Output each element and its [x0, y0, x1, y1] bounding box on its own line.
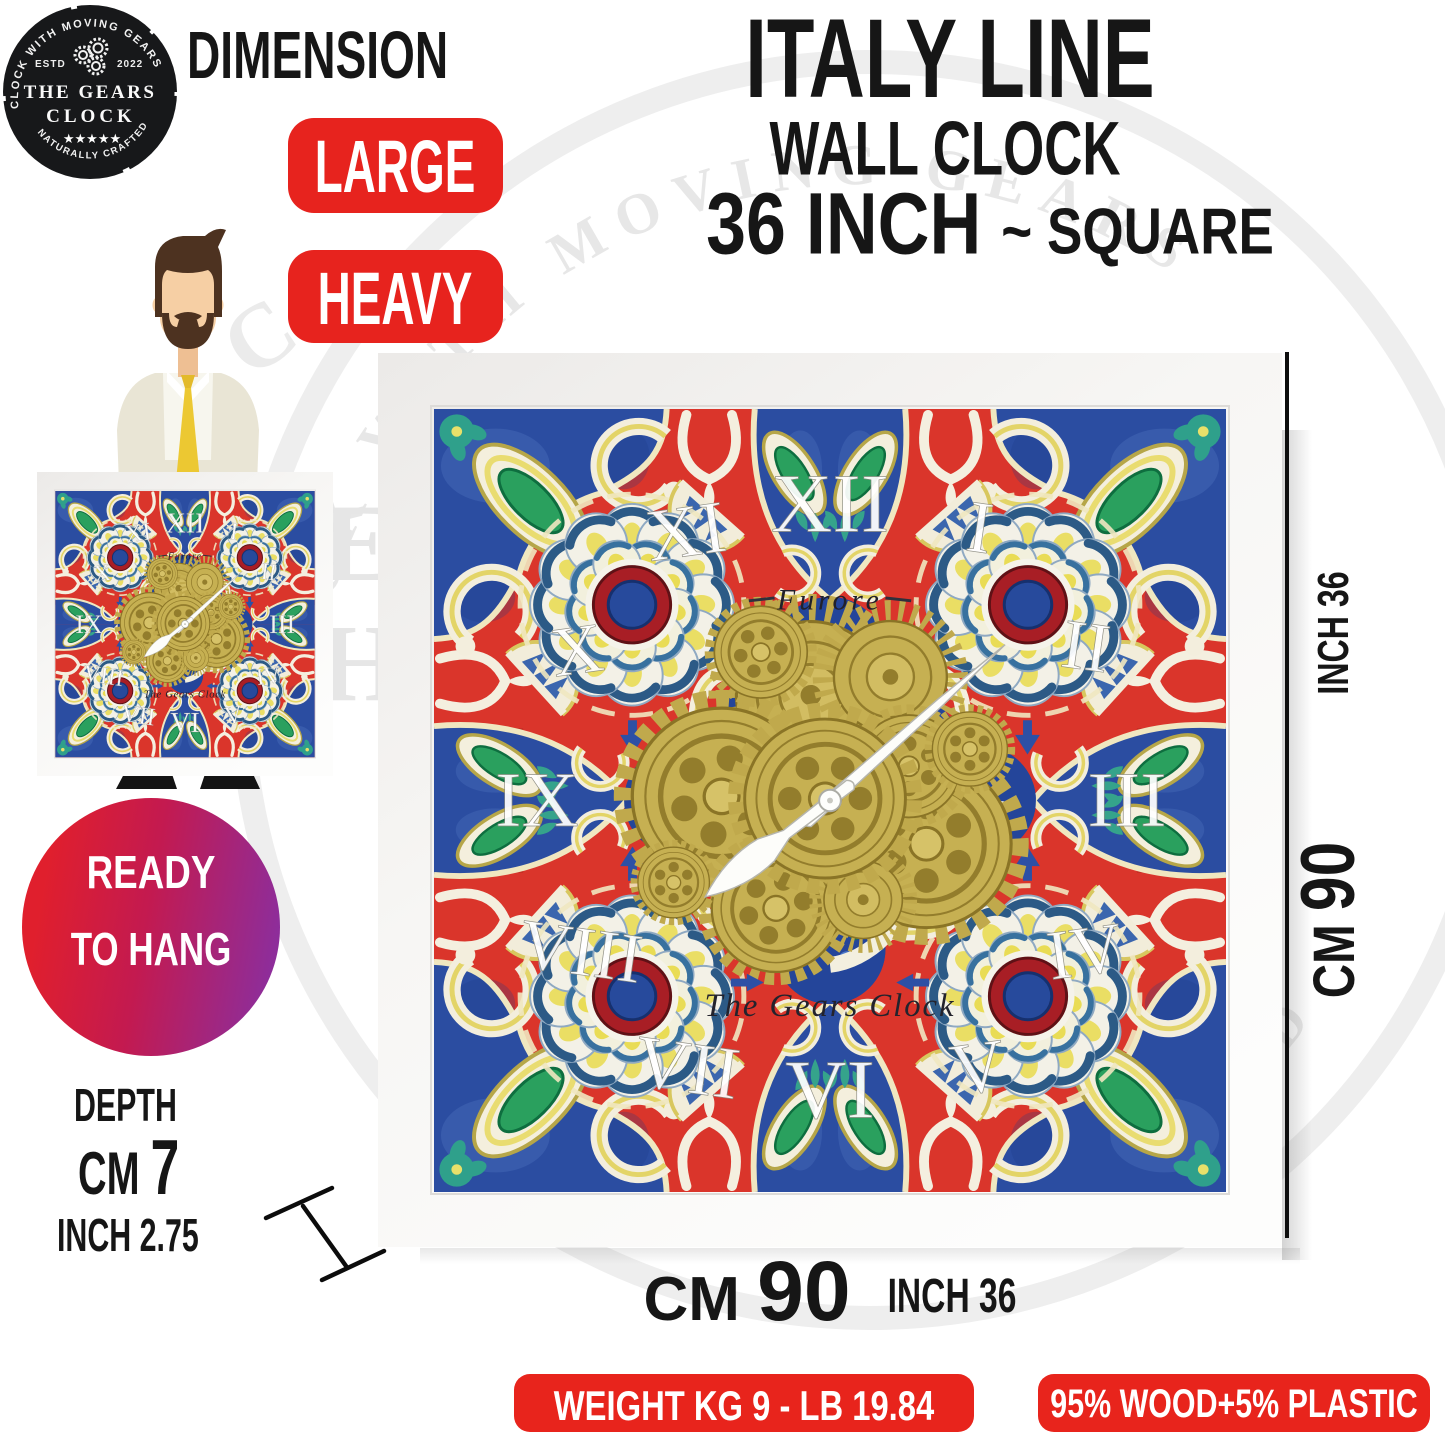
svg-text:THE GEARS: THE GEARS: [24, 82, 157, 103]
svg-text:2022: 2022: [117, 59, 143, 70]
svg-text:ESTD: ESTD: [35, 59, 66, 70]
svg-text:CLOCK: CLOCK: [46, 106, 136, 127]
svg-text:★★★★★: ★★★★★: [63, 131, 121, 146]
